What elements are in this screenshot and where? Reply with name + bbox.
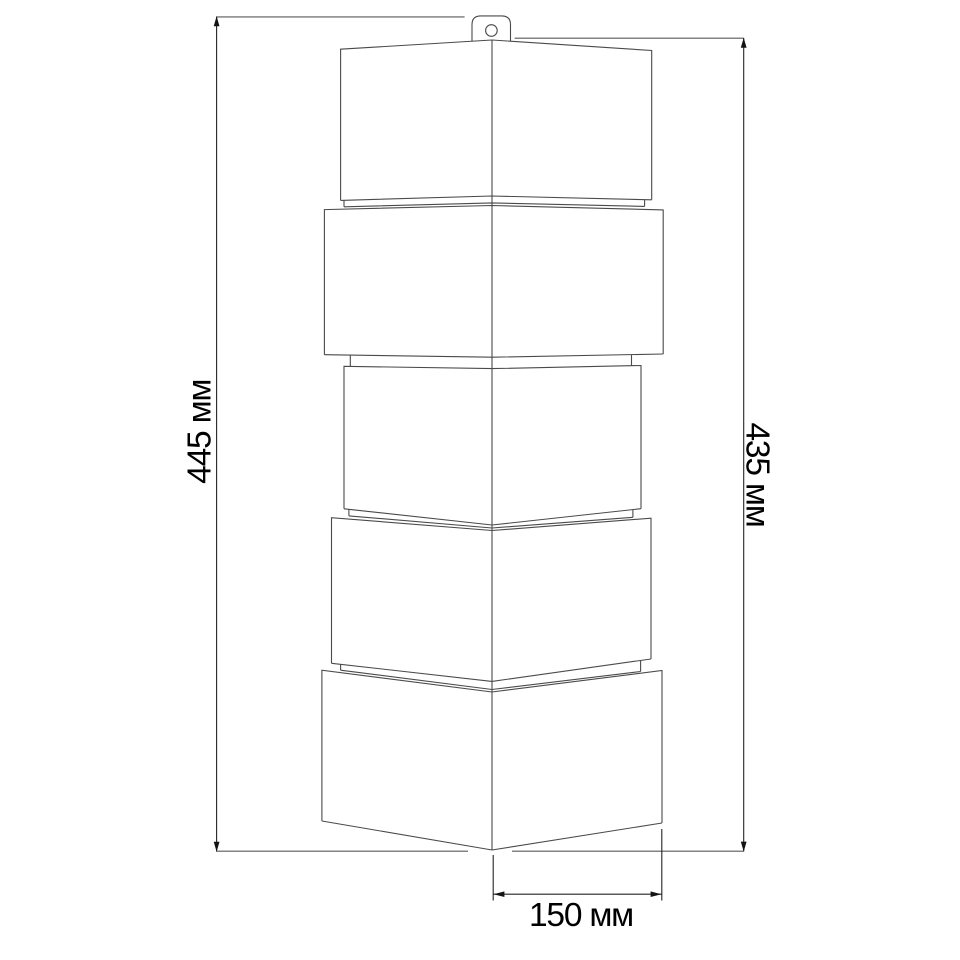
svg-text:435 мм: 435 мм (739, 422, 776, 526)
svg-text:445 мм: 445 мм (182, 380, 219, 484)
svg-text:150 мм: 150 мм (529, 897, 633, 934)
